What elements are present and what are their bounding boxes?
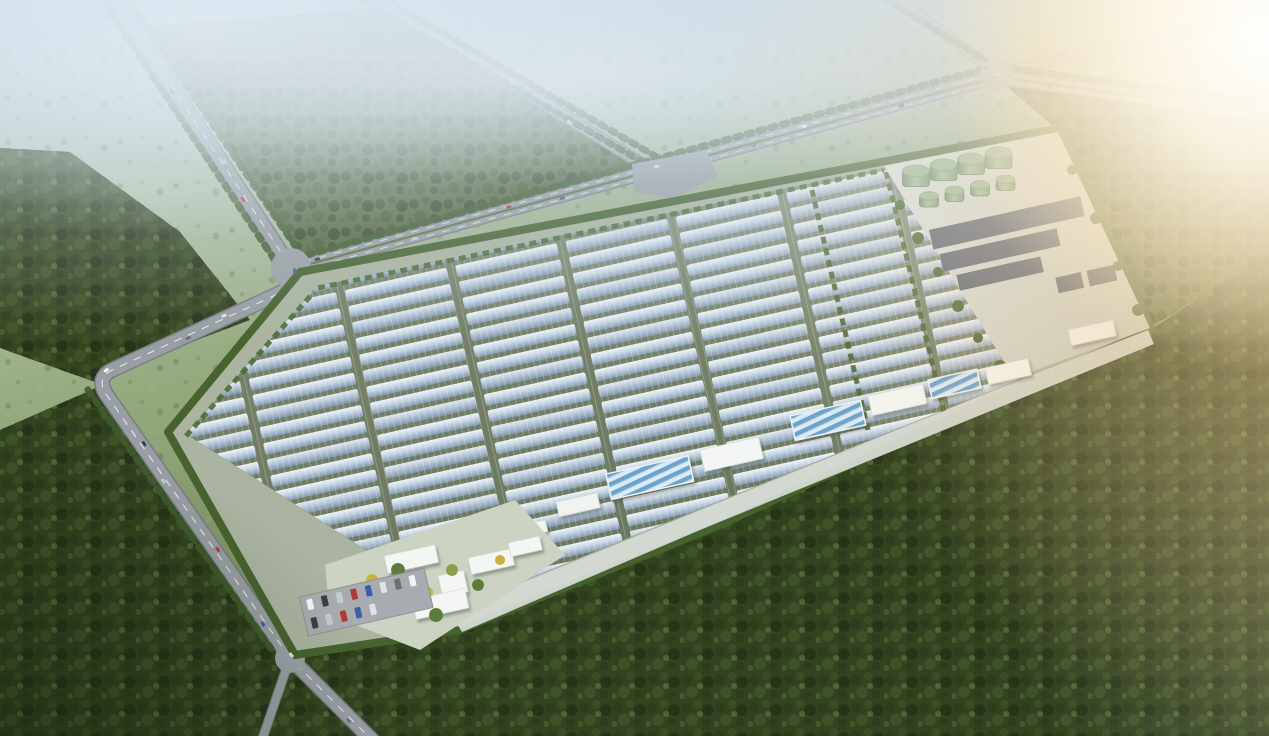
aerial-scene <box>0 0 1269 736</box>
storage-tank <box>971 181 990 196</box>
storage-tank <box>985 147 1012 169</box>
storage-tank <box>903 165 930 187</box>
aerial-view-canvas <box>0 0 1269 736</box>
storage-tank <box>958 153 985 175</box>
storage-tank <box>996 175 1015 190</box>
storage-tank <box>945 186 964 201</box>
storage-tank <box>920 192 939 207</box>
storage-tank <box>930 159 957 181</box>
